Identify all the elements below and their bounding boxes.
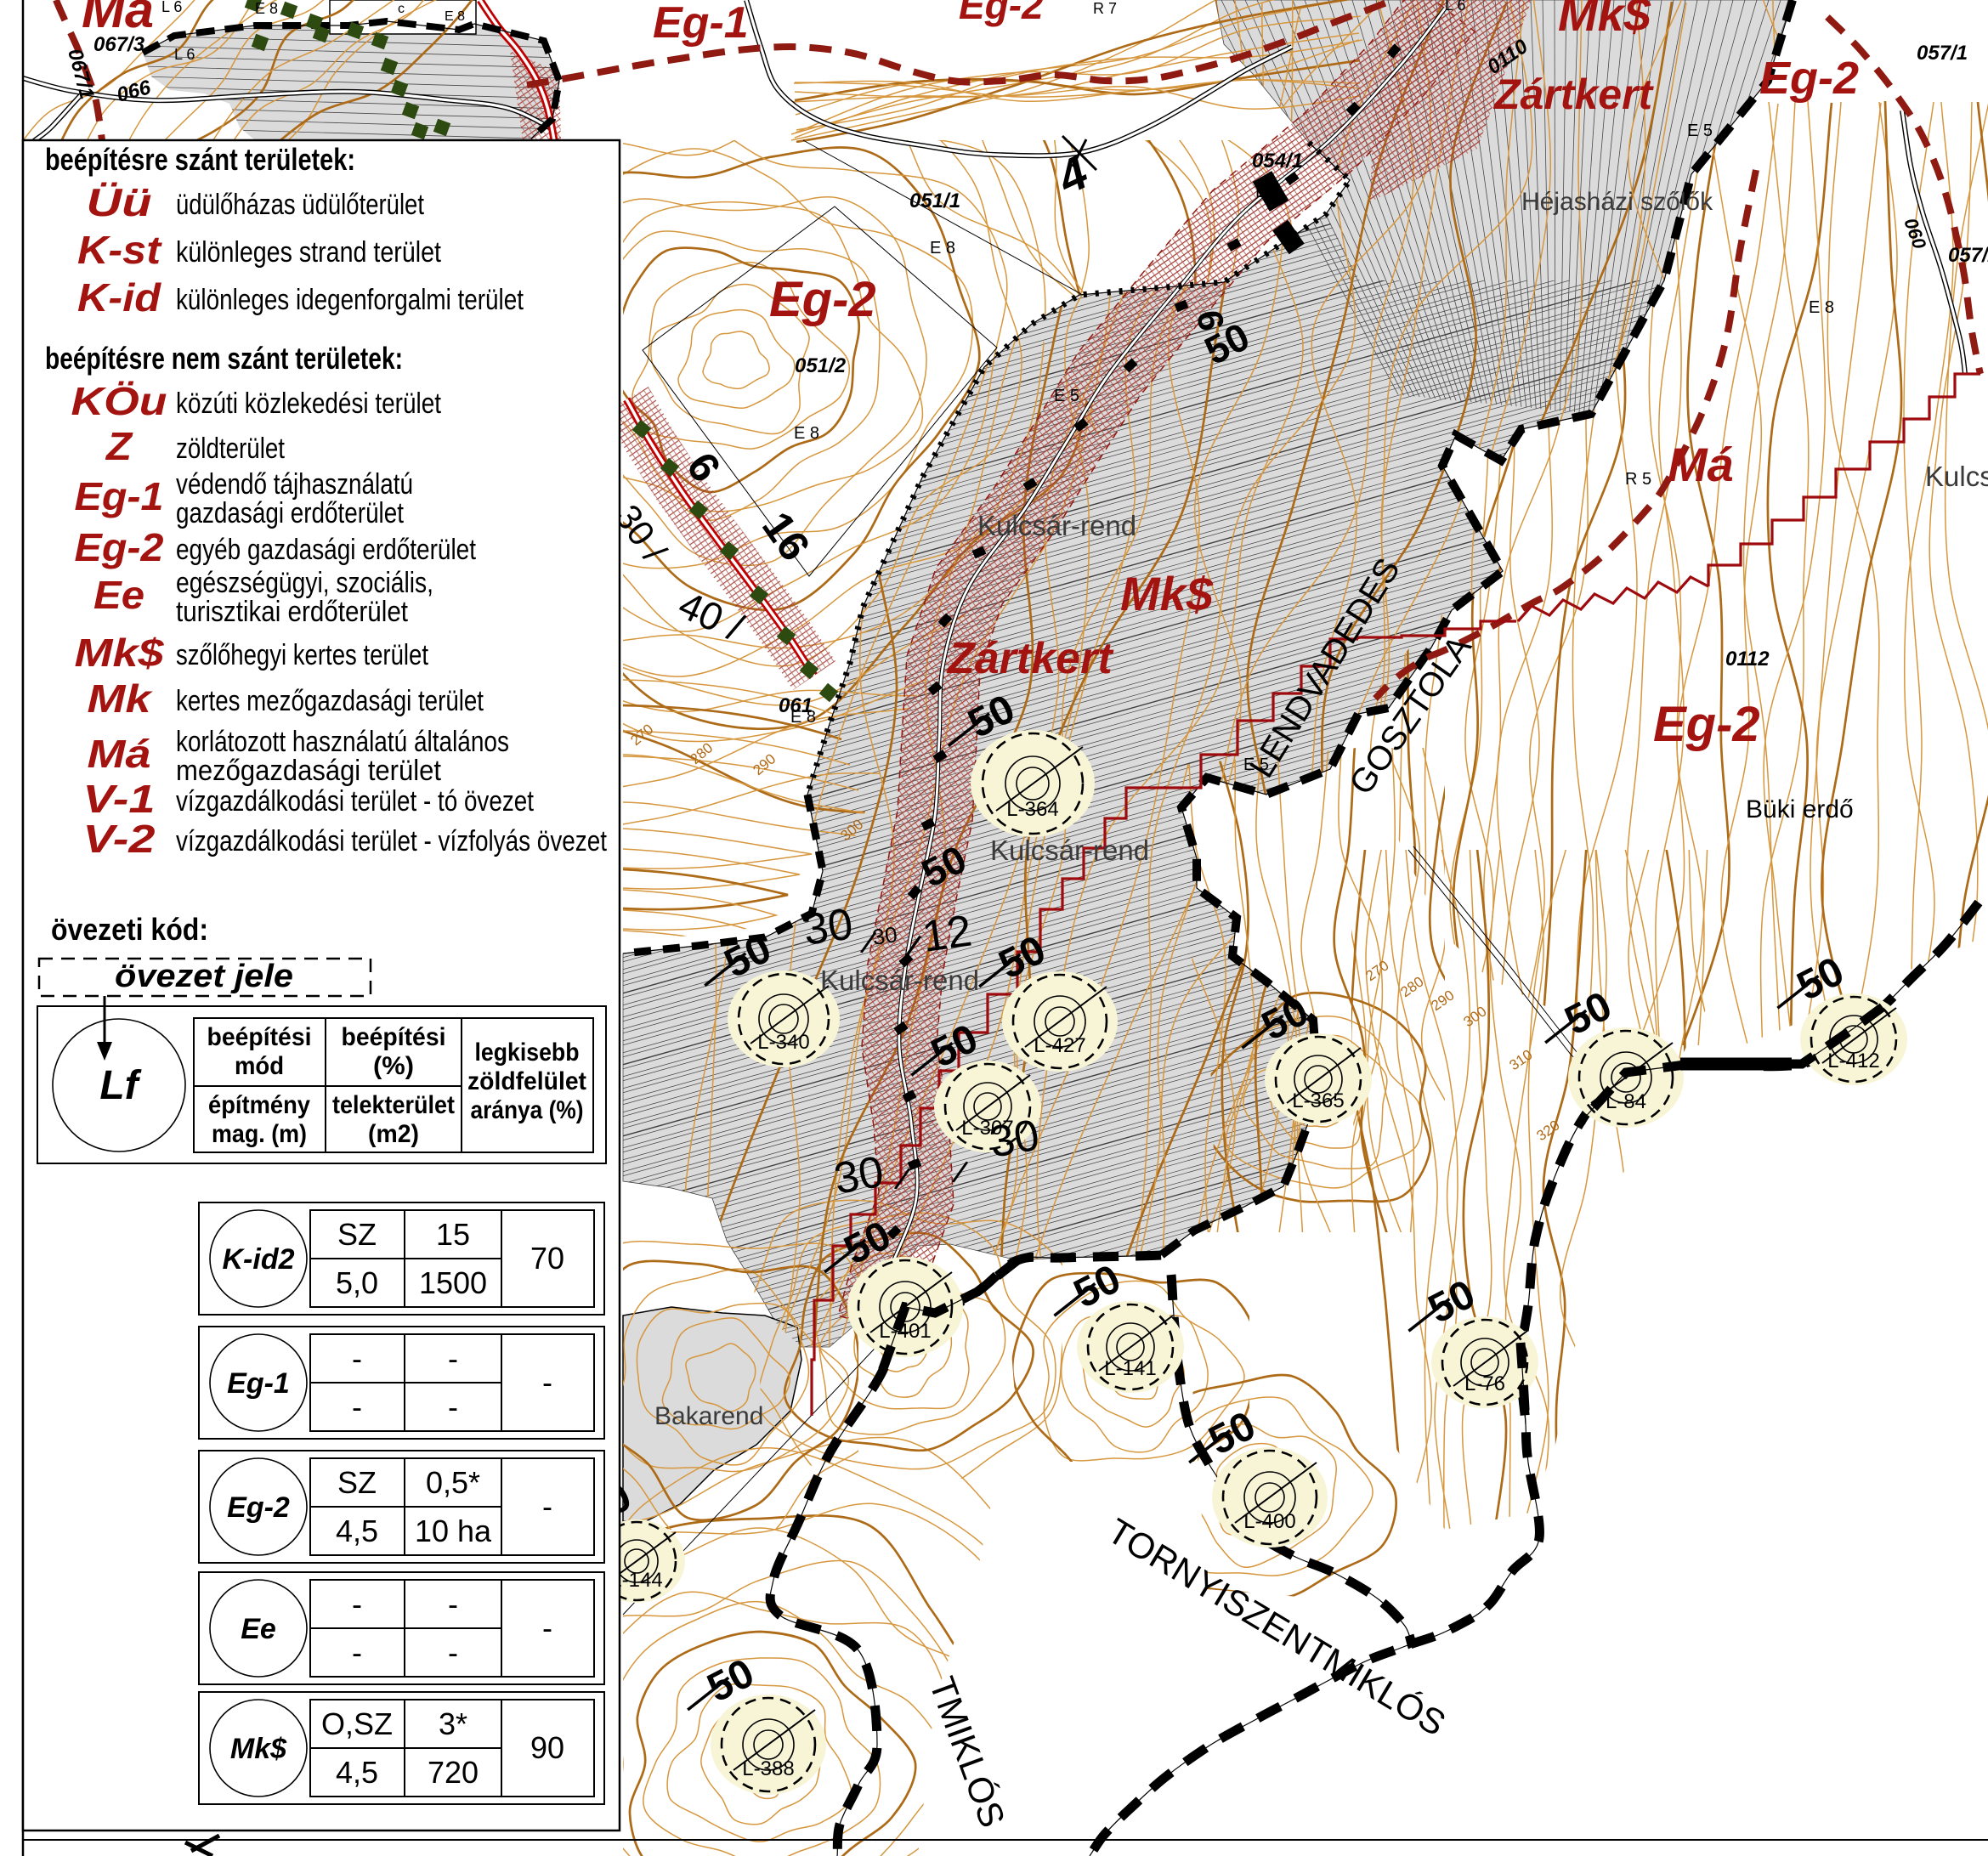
svg-text:zöldfelület: zöldfelület [467,1067,586,1095]
svg-text:E 8: E 8 [930,239,955,257]
svg-text:aránya (%): aránya (%) [471,1096,584,1124]
svg-text:üdülőházas üdülőterület: üdülőházas üdülőterület [176,189,424,221]
svg-text:Eg-2: Eg-2 [769,272,876,327]
svg-text:(m2): (m2) [368,1120,419,1148]
svg-text:R 7: R 7 [1093,0,1117,17]
svg-text:057/2: 057/2 [1948,244,1988,267]
svg-text:közúti közlekedési terület: közúti közlekedési terület [176,388,441,420]
svg-text:Ee: Ee [241,1613,276,1645]
svg-text:067/3: 067/3 [93,33,145,56]
svg-text:E 5: E 5 [1687,122,1713,140]
svg-text:Büki erdő: Büki erdő [1746,795,1854,823]
svg-text:E 8: E 8 [1809,298,1834,317]
svg-text:KÖu: KÖu [71,379,167,423]
svg-text:L-427: L-427 [1034,1034,1085,1057]
svg-text:Eg-2: Eg-2 [1653,697,1760,752]
svg-text:turisztikai erdőterület: turisztikai erdőterület [176,596,408,628]
svg-text:különleges strand terület: különleges strand terület [176,236,441,269]
svg-text:O,SZ: O,SZ [321,1706,393,1741]
svg-text:L 6: L 6 [174,46,195,63]
svg-text:4,5: 4,5 [336,1755,378,1790]
svg-text:Z: Z [105,424,133,468]
svg-text:70: 70 [530,1241,564,1276]
svg-text:vízgazdálkodási terület - tó ö: vízgazdálkodási terület - tó övezet [176,785,534,818]
svg-text:L-364: L-364 [1006,798,1058,821]
svg-text:L-412: L-412 [1827,1050,1879,1072]
svg-text:legkisebb: legkisebb [475,1038,580,1067]
svg-text:zöldterület: zöldterület [176,433,285,465]
svg-text:E 5: E 5 [1054,387,1079,405]
svg-text:Héjasházi szőlők: Héjasházi szőlők [1521,188,1713,216]
svg-text:L-388: L-388 [742,1757,794,1780]
svg-text:beépítési: beépítési [342,1023,446,1051]
svg-text:V-2: V-2 [83,817,156,861]
svg-text:telekterület: telekterület [332,1091,455,1119]
svg-text:L 6: L 6 [1445,0,1465,14]
svg-text:mezőgazdasági terület: mezőgazdasági terület [176,755,442,787]
svg-text:Kulcsár-rend: Kulcsár-rend [990,835,1149,866]
svg-text:Eg-2: Eg-2 [959,0,1044,27]
svg-text:egészségügyi, szociális,: egészségügyi, szociális, [176,567,433,599]
svg-text:Eg-1: Eg-1 [75,474,164,518]
svg-text:-: - [448,1635,458,1670]
svg-text:4,5: 4,5 [336,1514,378,1548]
svg-text:-: - [448,1587,458,1621]
svg-text:Eg-2: Eg-2 [227,1491,290,1524]
svg-text:0,5*: 0,5* [426,1465,480,1500]
svg-text:különleges idegenforgalmi terü: különleges idegenforgalmi terület [176,284,524,316]
svg-text:K-st: K-st [77,228,162,272]
svg-text:Ee: Ee [93,573,144,617]
svg-text:15: 15 [436,1217,470,1252]
svg-text:-: - [448,1389,458,1424]
svg-text:E 8: E 8 [794,424,819,443]
svg-text:-: - [542,1365,552,1400]
svg-text:Kulcsár-rend: Kulcsár-rend [977,510,1136,541]
svg-text:Mk$: Mk$ [1558,0,1651,41]
svg-text:R 5: R 5 [1625,470,1651,489]
svg-text:kertes mezőgazdasági terület: kertes mezőgazdasági terület [176,685,484,717]
svg-text:30: 30 [801,899,856,954]
svg-text:30: 30 [871,921,899,950]
svg-text:Üü: Üü [87,180,152,224]
svg-text:-: - [542,1610,552,1645]
svg-text:-: - [352,1341,362,1376]
svg-text:beépítésre szánt területek:: beépítésre szánt területek: [45,142,355,177]
svg-text:Mk$: Mk$ [75,631,164,675]
svg-text:-: - [448,1341,458,1376]
svg-text:E 7: E 7 [1255,183,1281,201]
svg-text:beépítésre nem szánt területek: beépítésre nem szánt területek: [45,341,403,376]
svg-text:építmény: építmény [208,1091,310,1119]
svg-text:720: 720 [428,1755,479,1790]
svg-text:Lf: Lf [99,1063,141,1108]
svg-text:-: - [352,1635,362,1670]
svg-text:057/1: 057/1 [1917,42,1968,65]
svg-text:L-76: L-76 [1464,1372,1505,1395]
svg-text:Zártkert: Zártkert [1492,71,1655,118]
svg-text:Má: Má [1668,438,1734,491]
svg-text:Eg-2: Eg-2 [1759,53,1859,104]
svg-text:Mk: Mk [88,676,154,721]
svg-text:-: - [542,1489,552,1524]
svg-text:mód: mód [235,1052,284,1080]
svg-text:V-1: V-1 [83,777,156,821]
svg-text:Má: Má [88,732,151,776]
svg-text:övezet jele: övezet jele [115,959,293,994]
svg-text:5,0: 5,0 [336,1265,378,1300]
svg-text:beépítési: beépítési [207,1023,312,1051]
svg-text:(%): (%) [373,1052,414,1080]
svg-text:Kulcsár-rend: Kulcsár-rend [820,965,979,996]
svg-text:L-141: L-141 [1104,1357,1156,1380]
svg-text:0112: 0112 [1725,648,1770,671]
svg-text:Eg-2: Eg-2 [75,525,164,569]
svg-text:vízgazdálkodási terület - vízf: vízgazdálkodási terület - vízfolyás övez… [176,825,607,857]
svg-text:K-id: K-id [77,275,161,320]
svg-text:SZ: SZ [337,1217,377,1252]
svg-text:30: 30 [986,1111,1043,1168]
svg-text:L-400: L-400 [1243,1510,1295,1533]
svg-text:12: 12 [920,906,975,961]
svg-text:054/1: 054/1 [1252,150,1303,173]
svg-text:Kulcsár-re: Kulcsár-re [1925,461,1988,492]
svg-text:L 6: L 6 [161,0,182,15]
svg-text:K-id2: K-id2 [223,1243,295,1276]
svg-text:gazdasági erdőterület: gazdasági erdőterület [176,497,404,529]
svg-text:Eg-1: Eg-1 [653,0,749,48]
svg-text:mag. (m): mag. (m) [212,1120,307,1148]
svg-text:SZ: SZ [337,1465,377,1500]
svg-text:L-401: L-401 [879,1320,931,1343]
svg-text:Bakarend: Bakarend [654,1402,763,1430]
svg-text:E 8: E 8 [790,708,816,727]
svg-text:-: - [352,1587,362,1621]
svg-text:egyéb gazdasági erdőterület: egyéb gazdasági erdőterület [176,534,476,566]
svg-text:Mk$: Mk$ [230,1733,287,1765]
svg-text:-: - [352,1389,362,1424]
svg-text:E 8: E 8 [445,9,465,24]
svg-text:3*: 3* [439,1706,467,1741]
svg-text:szőlőhegyi kertes terület: szőlőhegyi kertes terület [176,639,428,671]
svg-text:c: c [398,2,405,16]
svg-text:L-340: L-340 [757,1031,809,1054]
svg-text:30: 30 [830,1147,887,1204]
svg-text:Eg-1: Eg-1 [227,1367,290,1400]
svg-text:Mk$: Mk$ [1120,567,1214,620]
svg-text:051/1: 051/1 [909,190,960,212]
svg-text:védendő tájhasználatú: védendő tájhasználatú [176,468,413,501]
svg-text:Zártkert: Zártkert [946,634,1114,683]
svg-text:E 8: E 8 [255,0,278,17]
svg-text:051/2: 051/2 [795,354,847,377]
svg-text:1500: 1500 [419,1265,487,1300]
svg-text:90: 90 [530,1730,564,1765]
svg-text:korlátozott használatú általán: korlátozott használatú általános [176,726,509,758]
svg-text:övezeti kód:: övezeti kód: [51,912,208,947]
svg-text:L-365: L-365 [1292,1089,1344,1112]
svg-text:10 ha: 10 ha [415,1514,492,1548]
